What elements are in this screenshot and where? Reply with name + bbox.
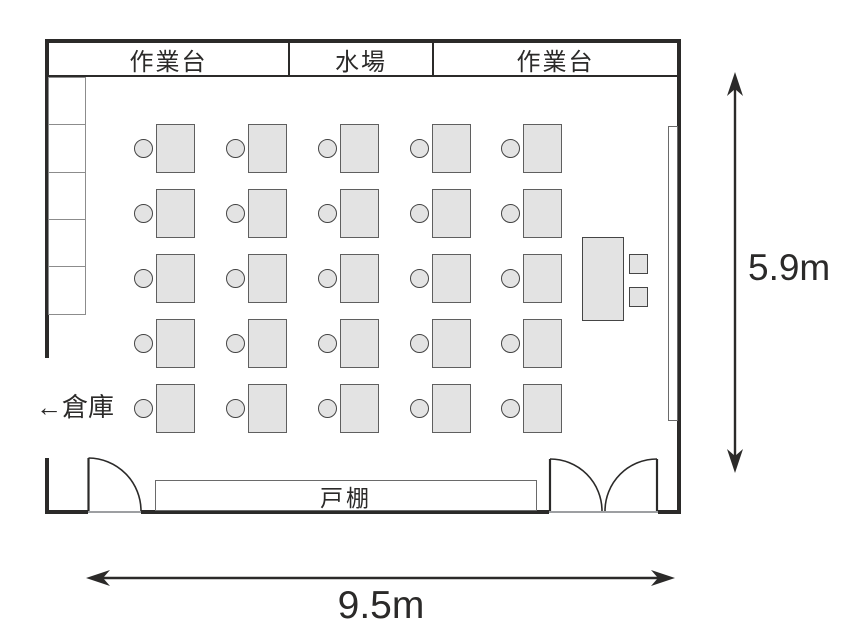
stool: [501, 334, 520, 353]
student-desk: [523, 254, 562, 303]
linework-layer: [0, 0, 844, 631]
sink-area: 水場: [288, 43, 434, 75]
wall-bottom-left: [45, 510, 88, 514]
student-desk: [523, 384, 562, 433]
stool: [501, 204, 520, 223]
door-threshold-right: [549, 511, 658, 513]
stool: [134, 399, 153, 418]
student-desk: [432, 124, 471, 173]
teacher-side-square-2: [629, 287, 648, 307]
stool: [501, 139, 520, 158]
stool: [226, 139, 245, 158]
stool: [134, 204, 153, 223]
locker-cell: [48, 77, 86, 126]
wall-left-lower: [45, 458, 49, 514]
stool: [318, 204, 337, 223]
stool: [501, 399, 520, 418]
wall-lockers: [48, 77, 86, 315]
floor-plan: 作業台 水場 作業台 ←倉庫 戸棚: [0, 0, 844, 631]
student-desk: [248, 254, 287, 303]
student-desk: [340, 319, 379, 368]
dim-width-arrowhead-right: [651, 570, 675, 586]
student-desk: [156, 124, 195, 173]
work-counter-left-label: 作業台: [130, 42, 208, 77]
student-desk: [432, 189, 471, 238]
stool: [226, 399, 245, 418]
door-arc-right-a: [550, 459, 602, 511]
stool: [410, 204, 429, 223]
dim-width-label: 9.5m: [311, 584, 451, 628]
stool: [410, 139, 429, 158]
locker-cell: [48, 172, 86, 221]
student-desk: [432, 254, 471, 303]
locker-cell: [48, 266, 86, 315]
student-desk: [523, 319, 562, 368]
dim-height-label: 5.9m: [748, 247, 830, 289]
stool: [318, 399, 337, 418]
whiteboard: [668, 126, 678, 421]
student-desk: [248, 189, 287, 238]
work-counter-right-label: 作業台: [517, 42, 595, 77]
cupboard: 戸棚: [155, 480, 537, 511]
stool: [226, 204, 245, 223]
student-desk: [340, 189, 379, 238]
stool: [226, 334, 245, 353]
stool: [410, 269, 429, 288]
student-desk: [523, 189, 562, 238]
student-desk: [340, 384, 379, 433]
student-desk: [340, 254, 379, 303]
teacher-desk: [582, 237, 624, 321]
stool: [501, 269, 520, 288]
dim-height-arrowhead-top: [727, 72, 743, 96]
stool: [318, 334, 337, 353]
student-desk: [432, 384, 471, 433]
stool: [410, 334, 429, 353]
door-arc-left: [89, 458, 142, 511]
student-desk: [432, 319, 471, 368]
student-desk: [248, 319, 287, 368]
work-counter-right: 作業台: [434, 43, 677, 75]
cupboard-label: 戸棚: [320, 479, 372, 513]
wall-bottom-right: [658, 510, 681, 514]
dim-height-arrowhead-bottom: [727, 449, 743, 473]
stool: [318, 269, 337, 288]
student-desk: [156, 319, 195, 368]
student-desk: [248, 384, 287, 433]
sink-area-label: 水場: [335, 42, 387, 77]
locker-cell: [48, 124, 86, 173]
stool: [134, 334, 153, 353]
stool: [226, 269, 245, 288]
student-desk: [523, 124, 562, 173]
locker-cell: [48, 219, 86, 268]
stool: [134, 269, 153, 288]
stool: [410, 399, 429, 418]
teacher-side-square-1: [629, 254, 648, 274]
stool: [318, 139, 337, 158]
dim-width-arrowhead-left: [86, 570, 110, 586]
student-desk: [156, 384, 195, 433]
student-desk: [248, 124, 287, 173]
door-arc-right-b: [605, 459, 657, 511]
student-desk: [156, 254, 195, 303]
student-desk: [340, 124, 379, 173]
counter-band: 作業台 水場 作業台: [49, 43, 677, 77]
stool: [134, 139, 153, 158]
student-desk: [156, 189, 195, 238]
storage-label: ←倉庫: [36, 387, 114, 424]
work-counter-left: 作業台: [49, 43, 288, 75]
door-threshold-left: [88, 511, 141, 513]
